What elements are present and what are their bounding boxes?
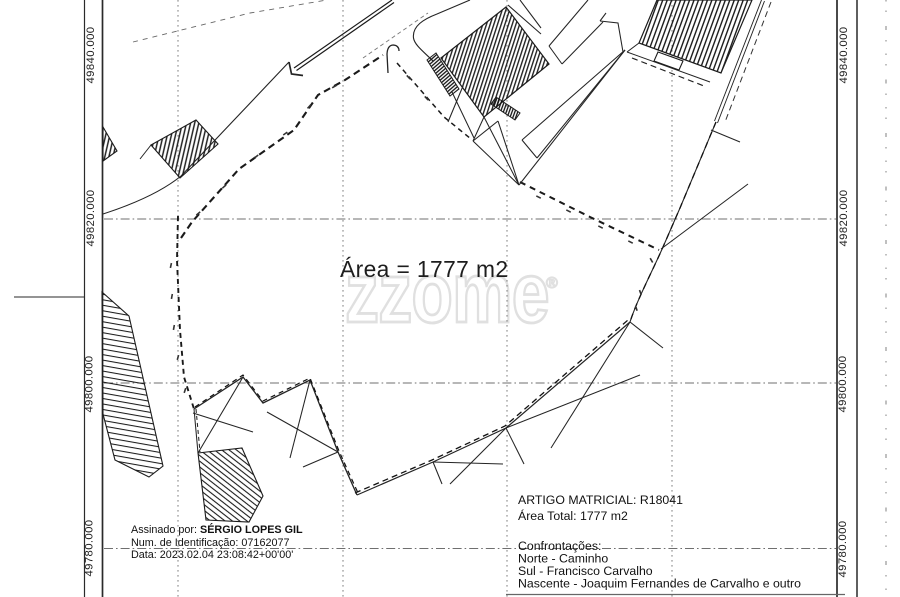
svg-text:Área = 1777 m2: Área = 1777 m2 (340, 256, 508, 282)
svg-text:49780.000: 49780.000 (837, 520, 849, 577)
svg-text:49780.000: 49780.000 (84, 519, 96, 576)
svg-text:Num. de Identificação: 0716207: Num. de Identificação: 07162077 (131, 537, 289, 549)
svg-text:49840.000: 49840.000 (838, 26, 850, 83)
svg-text:Área Total: 1777 m2: Área Total: 1777 m2 (518, 508, 628, 523)
svg-text:Data: 2023.02.04 23:08:42+00'0: Data: 2023.02.04 23:08:42+00'00' (131, 549, 293, 561)
svg-text:49800.000: 49800.000 (837, 355, 849, 412)
svg-text:®: ® (546, 275, 558, 292)
svg-text:49820.000: 49820.000 (85, 189, 97, 246)
svg-text:49820.000: 49820.000 (838, 189, 850, 246)
svg-text:ARTIGO MATRICIAL: R18041: ARTIGO MATRICIAL: R18041 (518, 493, 683, 507)
svg-text:Nascente - Joaquim Fernandes d: Nascente - Joaquim Fernandes de Carvalho… (518, 577, 801, 591)
svg-text:49840.000: 49840.000 (85, 26, 97, 83)
svg-text:Assinado por: SÉRGIO LOPES GIL: Assinado por: SÉRGIO LOPES GIL (131, 523, 303, 536)
svg-text:49800.000: 49800.000 (84, 355, 96, 412)
